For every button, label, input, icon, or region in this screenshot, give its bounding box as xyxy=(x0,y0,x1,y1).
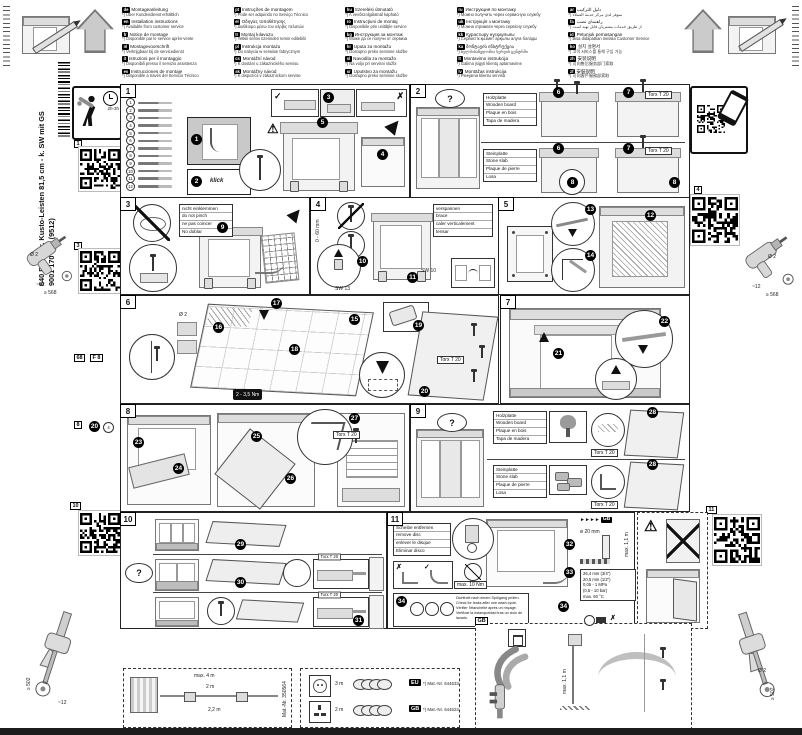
language-note: *) 可向客戶服務部索取 xyxy=(568,74,674,79)
drill-diameter-right: Ø 2 xyxy=(768,254,776,260)
coupling-icon xyxy=(236,692,248,702)
arrow-icon xyxy=(384,116,404,136)
clip-detail-2 xyxy=(283,559,311,587)
dishwasher-iso xyxy=(283,127,355,191)
step-25: 25 xyxy=(251,431,262,442)
language-note: *) Yetkili servis üzerinden temin edileb… xyxy=(234,37,340,42)
pipe-top-icon xyxy=(568,634,582,646)
depth-dim-right: ≥ 568 xyxy=(766,292,778,298)
language-entry: zf 安裝說明 *) 可向客戶服務部索取 xyxy=(568,69,674,81)
dishwasher-sketch-top-right xyxy=(728,16,776,54)
bottom-offset-left: ~12 xyxy=(58,700,66,706)
worktop-screwed-a xyxy=(617,95,679,137)
panel-9-steam-guard: 9 ? HolzplatteWooden boardPlaque en bois… xyxy=(410,404,690,512)
step-23: 23 xyxy=(133,437,144,448)
language-entry: ro Instrucţiuni de montaj *) Disponibile… xyxy=(345,19,451,31)
step-7: 7 xyxy=(623,87,634,98)
language-note: *) متوفر لدى مركز خدمة العملاء xyxy=(568,13,674,18)
plinth-rail-1 xyxy=(205,521,286,547)
step-24: 24 xyxy=(173,463,184,474)
language-entry: en Installation instructions *) Availabl… xyxy=(122,19,228,31)
qr-code-1 xyxy=(78,146,122,192)
step-20: 20 xyxy=(419,386,430,397)
leak-note: Dichtheit nach einem Spülgang prüfen.Che… xyxy=(456,596,526,621)
language-note: *) K dispozícii v zákazníckom servise xyxy=(234,74,340,79)
screw-icon xyxy=(473,326,475,336)
language-note: *) Pieejama klientu servisā xyxy=(457,74,563,79)
qr-code-10 xyxy=(78,510,122,556)
panel-1-parts-overview: 1 1 2 3 4 xyxy=(120,84,410,198)
panel-10-plinth: 10 ? 29 30 Torx T 20 xyxy=(120,512,387,629)
foot-adjust-detail xyxy=(317,244,361,288)
hose-length-2: 2,2 m xyxy=(208,707,221,713)
language-entry: kk Құрастыру нұсқаулығы *) Сервистік қыз… xyxy=(457,32,563,44)
panel-6-label: 6 xyxy=(120,295,136,309)
gb-cord-coil xyxy=(353,703,392,721)
note-line: brace xyxy=(434,213,492,221)
worktop-bracket-a xyxy=(541,95,597,137)
parts-list-item: 5 xyxy=(126,129,182,137)
step-6: 6 xyxy=(553,87,564,98)
cabinet-variant-3 xyxy=(155,597,199,627)
mark-20: 20 xyxy=(89,421,100,432)
door-warning-box: ⚠ xyxy=(637,512,708,629)
language-entry: it Istruzioni per il montaggio *) Dispon… xyxy=(122,56,228,68)
note-line: nicht einklemmen xyxy=(180,205,232,213)
part-icon xyxy=(138,185,172,188)
offset-dim-left: ~12 xyxy=(36,282,44,288)
rail-hook-detail xyxy=(595,358,637,400)
panel-5-door-prep: 5 13 14 12 xyxy=(498,197,690,295)
language-note: *) A vevőszolgálatnál kapható xyxy=(345,13,451,18)
door-rear-view xyxy=(507,226,553,282)
step-18: 18 xyxy=(289,344,300,355)
drain-height: max. 1,1 m xyxy=(624,532,630,557)
eu-badge: EU xyxy=(409,679,421,686)
step-2: 2 xyxy=(191,176,202,187)
gb-see-below: ►►►► GB xyxy=(580,517,612,523)
drill-depth-detail xyxy=(129,334,175,380)
panel-6-door-template: 6 Ø 2 17 16 18 15 2 - 3,5 Nm 19 Torx T 2… xyxy=(120,295,499,404)
remove-disc-note: Scheibe entfernenremove discenlever le d… xyxy=(393,523,451,556)
worktop-screwed-b xyxy=(617,151,679,193)
parts-list-item: 9 xyxy=(126,160,182,168)
part-icon xyxy=(138,132,172,135)
wrong-brace-detail xyxy=(337,202,365,230)
screw-icon xyxy=(473,372,475,382)
spec-line: max. 60 °C xyxy=(583,594,633,600)
language-entry: lt Montavimo instrukcija *) Galima įsigy… xyxy=(457,56,563,68)
panel-2-worktop-fixing: 2 ? HolzplatteWooden boardPlaque en bois… xyxy=(410,84,690,198)
eu-cord-coil xyxy=(353,677,392,695)
language-entry: sk Montážny návod *) K dispozícii v záka… xyxy=(234,69,340,81)
drain-hose-arc xyxy=(598,652,676,703)
language-note: *) Disponibili presso il servizio assist… xyxy=(122,62,228,67)
step-28b: 28 xyxy=(647,459,658,470)
panel-8-door-fix: 8 23 24 25 26 27 Torx T 20 xyxy=(120,404,410,512)
step-26: 26 xyxy=(285,473,296,484)
part-icon xyxy=(138,140,172,143)
step-9: 9 xyxy=(217,222,228,233)
drain-dia: ø 20 mm xyxy=(580,529,600,535)
wooden-board-note: HolzplatteWooden boardPlaque en boisTapa… xyxy=(483,93,537,126)
panel-8-label: 8 xyxy=(120,404,136,418)
note-line: Plaque de pierre xyxy=(494,482,546,490)
arrow-up-icon-left xyxy=(76,9,114,53)
coupling-icon xyxy=(184,692,196,702)
torx-label: Torx T 20 xyxy=(318,592,341,599)
note-line: Holzplatte xyxy=(494,412,546,420)
question-cloud: ? xyxy=(435,89,465,108)
standpipe-icon xyxy=(572,638,574,704)
gb-badge: GB xyxy=(601,517,612,523)
cross-icon: ✗ xyxy=(396,563,402,571)
step-8b: 8 xyxy=(669,177,680,188)
clock-icon xyxy=(103,91,118,106)
dw-with-door xyxy=(646,569,700,623)
torx-label-a: Torx T 20 xyxy=(645,91,672,99)
plinth-section-2: Torx T 20 xyxy=(313,559,369,589)
range-dim: 0 - 60 mm xyxy=(315,219,321,242)
water-spec-box: 26,4 mm (3/4")20,5 mm (1/2")0,05 - 1 MPa… xyxy=(580,569,636,601)
gb-cord-length: 2 m xyxy=(335,707,343,713)
gb-arrows: ►►►► xyxy=(580,517,600,523)
clamp-screw xyxy=(662,650,664,658)
step-22: 22 xyxy=(659,316,670,327)
language-entry: bg Инструкция за монтаж *) Може да се по… xyxy=(345,32,451,44)
language-note: *) Disponibile prin unităţile service xyxy=(345,25,451,30)
language-entry: id Petunjuk pemasangan *) Bisa didapatka… xyxy=(568,32,674,44)
note-line: Holzplatte xyxy=(484,94,536,102)
language-entry: lv Montāžas instrukcija *) Pieejama klie… xyxy=(457,69,563,81)
parts-list-item: 11 xyxy=(126,175,182,183)
install-time: 2h-3h xyxy=(107,106,119,111)
drill-dia-label: Ø 2 xyxy=(179,312,187,318)
step-27: 27 xyxy=(349,413,360,424)
parts-list-item: 2 xyxy=(126,107,182,115)
parts-list-item: 4 xyxy=(126,122,182,130)
note-line: Plaque de pierre xyxy=(484,166,536,174)
installer-icon xyxy=(75,92,105,130)
leak-check-strip: 34 Dichtheit nach einem Spülgang prüfen.… xyxy=(393,593,529,627)
note-line: Tapa de madera xyxy=(494,436,546,443)
note-line: caler verticalement xyxy=(434,221,492,229)
note-line: Wooden board xyxy=(494,420,546,428)
language-entry: ru Инструкция по монтажу *) Можно получи… xyxy=(457,7,563,19)
drill-icon-left xyxy=(22,228,74,288)
torque-label: 2 - 3,5 Nm xyxy=(233,389,262,400)
corner-view-2 xyxy=(369,557,384,591)
gb-mat-nr: *) Mat.-Nr. 644624 xyxy=(423,707,459,712)
gb-section-label: GB xyxy=(475,617,488,625)
qr-code-4 xyxy=(690,194,740,246)
note-line: Stone slab xyxy=(484,158,536,166)
leak-note-line: Verificar la estanqueidad tras un ciclo … xyxy=(456,611,526,621)
step-1: 1 xyxy=(191,134,202,145)
part-icon xyxy=(138,117,172,120)
drill-block-b xyxy=(177,340,197,354)
language-note: *) Διαθέσιμο μέσω του σέρβις πελατών xyxy=(234,25,340,30)
detail-circle-screw xyxy=(239,149,281,191)
language-note: *) Можна отримати через сервісну службу xyxy=(457,25,563,30)
eu-socket-icon xyxy=(309,675,331,697)
drilling-template xyxy=(190,304,374,397)
step-12: 12 xyxy=(645,210,656,221)
kitchen-run-sketch xyxy=(416,107,480,189)
language-entry: sl Navodila za montažo *) Na voljo pri s… xyxy=(345,56,451,68)
torx-label: Torx T 20 xyxy=(318,554,341,561)
offset-dim-right: ~12 xyxy=(752,284,760,290)
corner-view-3 xyxy=(369,595,384,629)
language-note: *) Galima įsigyti klientų aptarnavime xyxy=(457,62,563,67)
note-line: verspannen xyxy=(434,205,492,213)
hose-bend-rules: ✗ ✓ xyxy=(393,561,453,589)
language-note: *) Disponible a través del Servicio Técn… xyxy=(122,74,228,79)
parts-list-item: 3 xyxy=(126,114,182,122)
step-19: 19 xyxy=(413,320,424,331)
language-entry: tr Montaj kılavuzu *) Yetkili servis üze… xyxy=(234,32,340,44)
step-30: 30 xyxy=(235,577,246,588)
fold-mark-68: 68 xyxy=(74,354,85,362)
language-entry: ka მონტაჟის ინსტრუქცია *) ხელმისაწვდომია… xyxy=(457,44,563,56)
fold-mark-f8: F 8 xyxy=(90,354,103,362)
note-line: Eliminar disco xyxy=(394,548,450,555)
step-11: 11 xyxy=(407,272,418,283)
cabinet-front xyxy=(599,206,685,288)
language-note: *) 可向售后服务部门索取 xyxy=(568,62,674,67)
language-entry: hr Uputa za montažu *) Dostupno preko se… xyxy=(345,44,451,56)
step-4: 4 xyxy=(377,149,388,160)
caulking-gun-icon-left xyxy=(20,600,90,710)
gb-pipe-height: max. 1,1 m xyxy=(562,669,568,694)
tap-disc-detail xyxy=(452,518,494,560)
part-icon xyxy=(138,170,172,173)
question-cloud: ? xyxy=(125,563,153,583)
panel-4-label: 4 xyxy=(310,197,326,211)
language-entry: cs Montážní návod *) K dostání u zákazni… xyxy=(234,56,340,68)
drill-diameter-left: Ø 2 xyxy=(30,252,38,258)
language-note: *) Pode ser adquirido no Serviço Técnico xyxy=(234,13,340,18)
sw13-label: SW 13 xyxy=(335,286,350,292)
language-entry: fr Notice de montage *) Disponible par l… xyxy=(122,32,228,44)
qr-code-3 xyxy=(78,248,122,294)
ground-hatch xyxy=(560,706,590,710)
wrong-box: ✗ xyxy=(356,89,407,117)
language-entry: sr Uputstvo za montažu *) Dostupno preko… xyxy=(345,69,451,81)
panel-7-label: 7 xyxy=(500,295,516,309)
parts-list-item: 8 xyxy=(126,152,182,160)
language-note: *) Über Kundendienst erhältlich xyxy=(122,13,228,18)
step-3: 3 xyxy=(323,92,334,103)
step-28: 28 xyxy=(647,407,658,418)
step-31: 31 xyxy=(353,615,364,626)
door-panel-crossed xyxy=(666,519,700,563)
note-line: Stone slab xyxy=(494,474,546,482)
language-note: *) از طریق خدمات مشتریان قابل تهیه است xyxy=(568,25,674,30)
max-torque-label: max. 10 Nm xyxy=(454,581,487,589)
question-cloud: ? xyxy=(437,413,467,432)
no-kink-icon xyxy=(464,563,482,581)
torx-label-a: Torx T 20 xyxy=(591,449,618,457)
warning-triangle-icon: ⚠ xyxy=(267,121,279,137)
torx-label-b: Torx T 20 xyxy=(591,501,618,509)
gb-section-box: GB max. 1,1 m xyxy=(475,623,692,730)
hose-length-1: 2 m xyxy=(206,684,214,690)
dw-front-brackets xyxy=(127,415,211,505)
arrow-up-icon-right xyxy=(684,9,722,53)
bottom-edge-bar xyxy=(0,728,802,735)
note-line: Losa xyxy=(484,174,536,181)
qr10-label: 10 xyxy=(70,502,81,510)
dw-rear-hoses xyxy=(486,519,568,587)
connector-icon xyxy=(580,559,610,564)
gb-socket-icon xyxy=(309,701,331,723)
step-17: 17 xyxy=(271,298,282,309)
parts-list: 1 2 3 4 5 xyxy=(126,99,182,190)
barcode xyxy=(58,62,70,138)
note-line: Wooden board xyxy=(484,102,536,110)
foil-detail xyxy=(591,413,625,447)
note-line: Steinplatte xyxy=(484,150,536,158)
note-line: Steinplatte xyxy=(494,466,546,474)
panel-1-label: 1 xyxy=(120,84,136,98)
part-icon xyxy=(138,155,172,158)
language-note: *) Можно получить через сервисную службу xyxy=(457,13,563,18)
language-note: *) 고객 서비스를 통해 구입 가능 xyxy=(568,50,674,55)
caulking-gun-icon-right xyxy=(722,600,792,710)
language-entry: ar دليل التركيب *) متوفر لدى مركز خدمة ا… xyxy=(568,7,674,19)
language-note: *) Сервистік қызмет арқылы алуға болады xyxy=(457,37,563,42)
pliers-cut-plug-icon xyxy=(484,640,540,722)
tree-picto xyxy=(549,411,587,443)
language-note: *) Available from customer service xyxy=(122,25,228,30)
note-line: remove disc xyxy=(394,532,450,540)
brace-note: verspannenbracecaler verticalementtensar xyxy=(433,204,493,237)
ruler-top-right xyxy=(792,6,799,66)
language-note: *) ხელმისაწვდომია სერვის ცენტრში xyxy=(457,50,563,55)
note-line: Plaque en bois xyxy=(484,110,536,118)
step-13: 13 xyxy=(585,204,596,215)
language-entry: hu Szerelési útmutató *) A vevőszolgálat… xyxy=(345,7,451,19)
correct-box: ✓ xyxy=(271,89,319,117)
language-entry: uk Інструкція з монтажу *) Можна отримат… xyxy=(457,19,563,31)
step-29: 29 xyxy=(235,539,246,550)
language-entry: de Montageanleitung *) Über Kundendienst… xyxy=(122,7,228,19)
step3-box: 3 xyxy=(320,89,355,117)
power-cord-box: 3 m EU *) Mat.-Nr. 644633 2 m GB *) Mat.… xyxy=(300,668,460,728)
parts-list-item: 6 xyxy=(126,137,182,145)
step-5: 5 xyxy=(317,117,328,128)
parts-list-item: 7 xyxy=(126,145,182,153)
language-note: *) Do nabycia w serwisie fabrycznym xyxy=(234,50,340,55)
language-note: *) Може да се получи от сервиза xyxy=(345,37,451,42)
language-entry: el Οδηγίες τοποθέτησης *) Διαθέσιμο μέσω… xyxy=(234,19,340,31)
part-icon xyxy=(138,124,172,127)
clamp-screw xyxy=(662,682,664,690)
step-6b: 6 xyxy=(553,143,564,154)
stone-slab-note: SteinplatteStone slabPlaque de pierreLos… xyxy=(483,149,537,182)
no-pinch-icon xyxy=(133,204,171,242)
note-line: tensar xyxy=(434,229,492,236)
language-note: *) Disponible par le service après-vente xyxy=(122,37,228,42)
note-line: do not pinch xyxy=(180,213,232,221)
step-34-ref: 34 xyxy=(396,596,407,607)
panel-10-label: 10 xyxy=(120,512,136,526)
drill-block-a xyxy=(177,322,197,336)
panel-7-door-mount: 7 21 22 xyxy=(500,295,690,404)
klick-label: klick xyxy=(210,178,223,184)
language-entry: zh 安装说明 *) 可向售后服务部门索取 xyxy=(568,56,674,68)
cross-icon: ✗ xyxy=(396,91,404,102)
part-icon xyxy=(138,162,172,165)
panel-4-level-brace: 4 verspannenbracecaler verticalementtens… xyxy=(310,197,499,295)
dishwasher-rear xyxy=(199,230,261,288)
cross-icon: ✗ xyxy=(610,614,616,622)
cabinet-variant-1 xyxy=(155,519,199,551)
manual-page: de Montageanleitung *) Über Kundendienst… xyxy=(0,0,802,735)
stone-slab-note: SteinplatteStone slabPlaque de pierreLos… xyxy=(493,465,547,498)
ruler-top-left xyxy=(3,6,10,66)
eu-mat-nr: *) Mat.-Nr. 644633 xyxy=(423,681,459,686)
step-33: 33 xyxy=(564,567,575,578)
hose-vertical xyxy=(644,634,645,712)
gb-badge: GB xyxy=(409,705,421,712)
panel-11-water-connection: 11 Scheibe entfernenremove discenlever l… xyxy=(387,512,635,629)
step-21: 21 xyxy=(553,348,564,359)
hose-clamp-detail xyxy=(129,244,177,292)
language-entry: pt Instruções de montagem *) Pode ser ad… xyxy=(234,7,340,19)
part-icon xyxy=(138,102,172,105)
mark-4: 4 xyxy=(103,422,114,433)
parts-list-item: 10 xyxy=(126,167,182,175)
part-icon xyxy=(138,147,172,150)
clip-detail-3 xyxy=(207,597,235,625)
language-entry: es Instrucciones de montaje *) Disponibl… xyxy=(122,69,228,81)
drill-dia-bottom-right: Ø 2 xyxy=(758,668,766,674)
torx-label: Torx T 20 xyxy=(333,431,360,439)
check-icon: ✓ xyxy=(274,91,282,102)
language-entry: pl Instrukcja montażu *) Do nabycia w se… xyxy=(234,44,340,56)
parts-list-item: 12 xyxy=(126,183,182,191)
language-note: *) Na voljo pri servisni službi xyxy=(345,62,451,67)
language-note: *) Dostupno preko servisne službe xyxy=(345,50,451,55)
step-15: 15 xyxy=(349,314,360,325)
note-line: enlever le disque xyxy=(394,540,450,548)
language-entry: ko 설치 설명서 *) 고객 서비스를 통해 구입 가능 xyxy=(568,44,674,56)
step-34: 34 xyxy=(558,601,569,612)
step-16: 16 xyxy=(213,322,224,333)
check-icon: ✓ xyxy=(424,563,430,571)
hose-mat-nr: Mat.-Nr. 350564 xyxy=(282,681,288,717)
language-note: *) Dostupno preko servisne službe xyxy=(345,74,451,79)
drill-icon-right xyxy=(740,228,796,292)
eu-cord-length: 3 m xyxy=(335,681,343,687)
cabinet-side xyxy=(361,137,405,187)
panel-5-label: 5 xyxy=(498,197,514,211)
language-entry: fa راهنمای نصب *) از طریق خدمات مشتریان … xyxy=(568,19,674,31)
language-list: de Montageanleitung *) Über Kundendienst… xyxy=(122,7,674,81)
step-32: 32 xyxy=(564,539,575,550)
panel-3-hoses: 3 nicht einklemmendo not pinchne pas coi… xyxy=(120,197,310,295)
step-7b: 7 xyxy=(623,143,634,154)
kitchen-run-sketch xyxy=(416,429,484,507)
panel-9-label: 9 xyxy=(410,404,426,418)
radiator-icon xyxy=(130,677,158,713)
part-icon xyxy=(138,109,172,112)
bottom-depth-left: ≥ 502 xyxy=(26,678,32,690)
bracket-detail xyxy=(591,465,625,499)
step-10: 10 xyxy=(357,256,368,267)
